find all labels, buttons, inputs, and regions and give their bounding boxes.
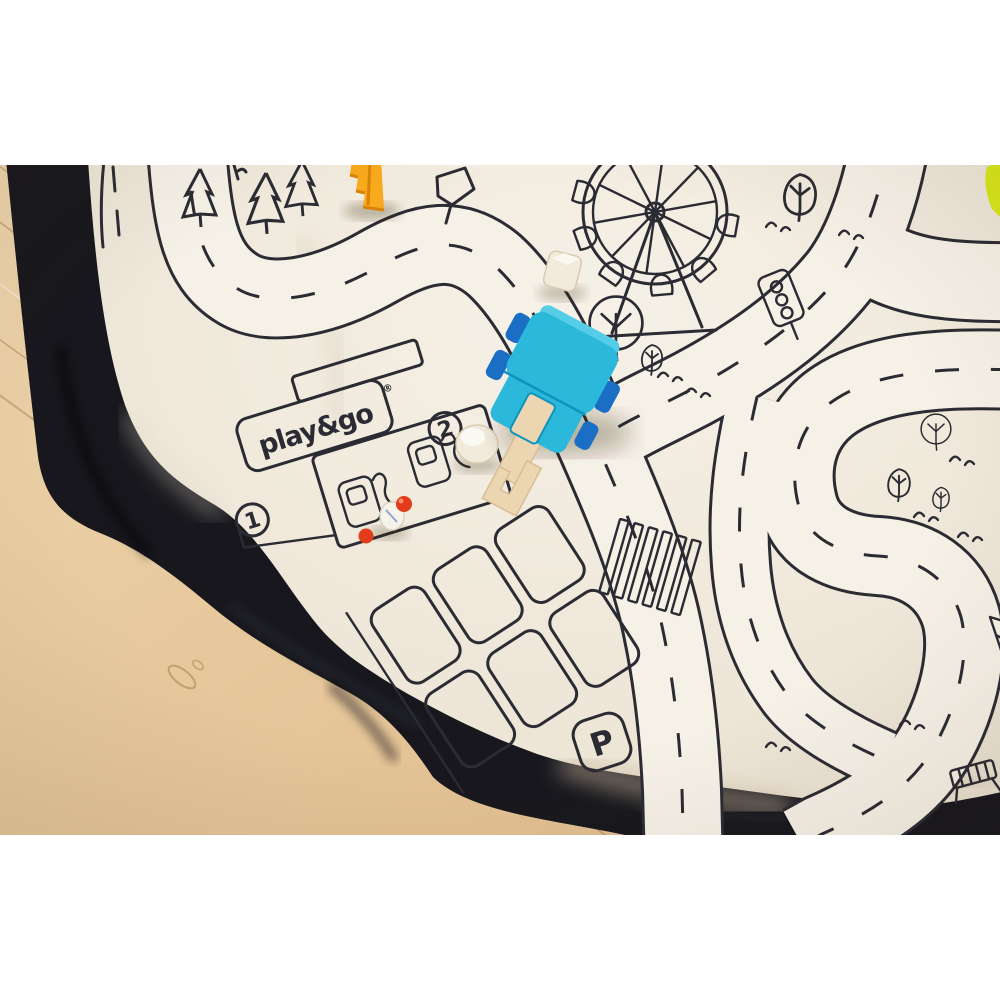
product-photo-page: play&go ® 2 1 P — [0, 0, 1000, 1000]
photo-vignette — [0, 165, 1000, 835]
top-margin — [0, 0, 1000, 165]
scene-svg: play&go ® 2 1 P — [0, 165, 1000, 835]
product-photo: play&go ® 2 1 P — [0, 165, 1000, 835]
bottom-margin — [0, 835, 1000, 1000]
